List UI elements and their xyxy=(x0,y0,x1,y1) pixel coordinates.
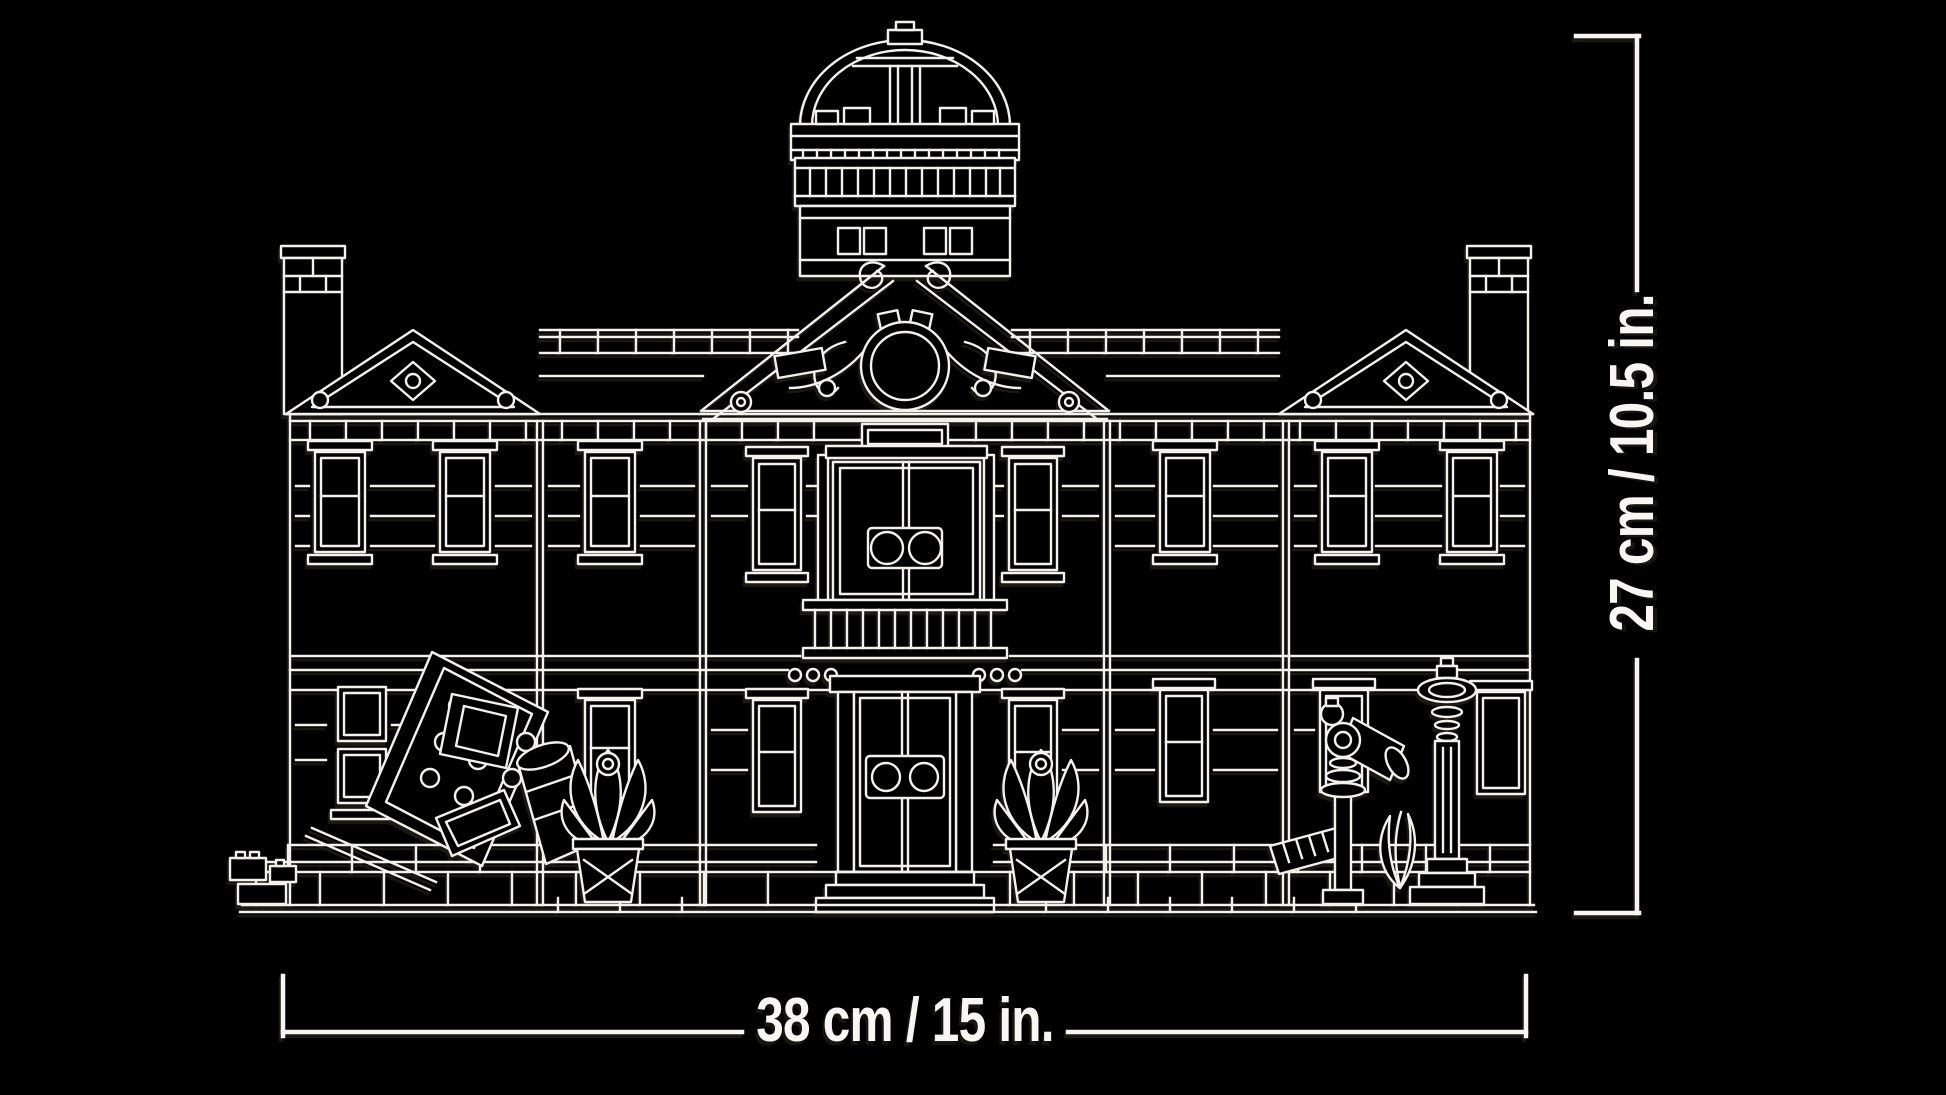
height-dimension-label: 27 cm / 10.5 in. xyxy=(1602,294,1664,631)
ground-door xyxy=(830,676,980,872)
tower-colonnade xyxy=(795,158,1015,206)
balcony-doors xyxy=(818,446,994,603)
width-dimension-label: 38 cm / 15 in. xyxy=(756,990,1054,1052)
diagram-stage: 38 cm / 15 in. 27 cm / 10.5 in. xyxy=(0,0,1946,1095)
cactus-plant xyxy=(1380,812,1415,888)
pedestal-column xyxy=(1410,658,1484,904)
tower-attic xyxy=(800,206,1010,276)
balcony xyxy=(803,600,1007,658)
